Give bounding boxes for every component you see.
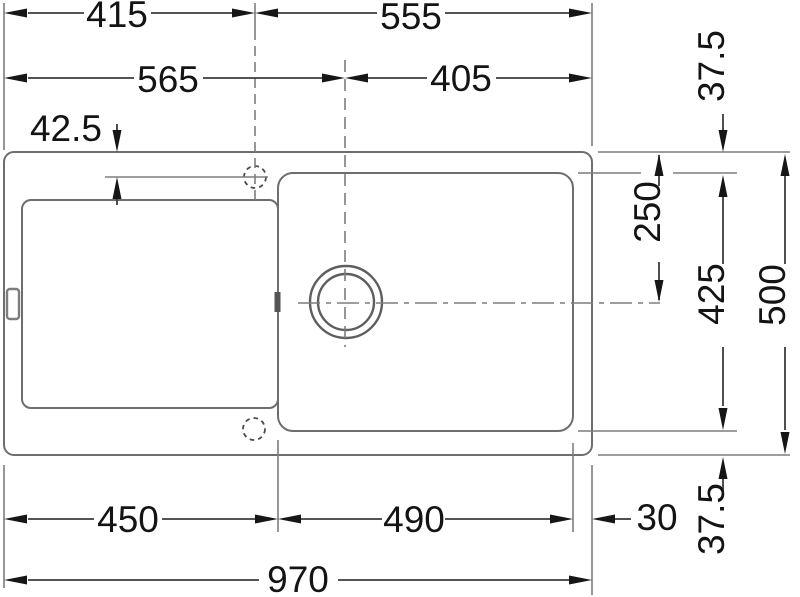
arrow-37-5-bottom-up xyxy=(719,457,728,479)
dim-label-450: 450 xyxy=(97,499,159,540)
dim-label-555: 555 xyxy=(380,0,442,37)
arrow-42-5-down xyxy=(113,130,122,152)
drain-inner-circle xyxy=(318,274,374,330)
arrow-565-left xyxy=(4,74,27,83)
arrow-30-right xyxy=(592,515,615,524)
dim-label-37-5-top: 37.5 xyxy=(691,30,732,102)
arrow-415-left xyxy=(4,9,27,18)
drainboard-inner-edge xyxy=(22,200,278,408)
arrow-970-left xyxy=(4,576,27,585)
arrow-250-down xyxy=(655,280,664,302)
dim-label-42-5: 42.5 xyxy=(30,108,102,149)
tap-hole-bottom-dashed xyxy=(243,418,265,440)
arrow-450-right xyxy=(255,515,278,524)
arrow-450-left xyxy=(4,515,27,524)
dim-label-250: 250 xyxy=(627,181,668,243)
dim-label-425: 425 xyxy=(691,263,732,325)
arrow-415-right xyxy=(232,9,255,18)
arrow-425-down xyxy=(719,408,728,430)
arrow-490-left xyxy=(278,515,301,524)
arrow-37-5-top-down xyxy=(719,130,728,152)
dim-label-37-5-bottom: 37.5 xyxy=(691,483,732,555)
dim-label-30: 30 xyxy=(636,497,677,538)
dim-label-490: 490 xyxy=(383,499,445,540)
dim-label-405: 405 xyxy=(430,58,492,99)
bowl-overflow-mark xyxy=(275,292,281,312)
edge-overflow-slot xyxy=(7,289,19,319)
arrow-490-right xyxy=(550,515,573,524)
arrow-500-up xyxy=(781,154,790,176)
dim-label-500: 500 xyxy=(752,264,793,326)
drawing-svg: 415 555 565 405 42.5 37.5 250 425 500 37… xyxy=(0,0,800,597)
arrow-555-right xyxy=(569,9,592,18)
arrow-970-right xyxy=(569,576,592,585)
sink-dimension-drawing: 415 555 565 405 42.5 37.5 250 425 500 37… xyxy=(0,0,800,597)
bowl-inner-edge xyxy=(278,173,573,431)
dim-label-970: 970 xyxy=(267,559,329,597)
arrow-405-right xyxy=(569,74,592,83)
dim-label-565: 565 xyxy=(137,59,199,100)
arrow-42-5-up xyxy=(113,177,122,199)
arrow-405-left xyxy=(345,74,368,83)
arrow-555-left xyxy=(255,9,278,18)
arrow-565-right xyxy=(322,74,345,83)
arrow-250-up xyxy=(655,154,664,176)
dim-label-415: 415 xyxy=(86,0,148,35)
arrow-425-up xyxy=(719,175,728,197)
drain-outer-circle xyxy=(310,266,382,338)
arrow-500-down xyxy=(781,432,790,454)
